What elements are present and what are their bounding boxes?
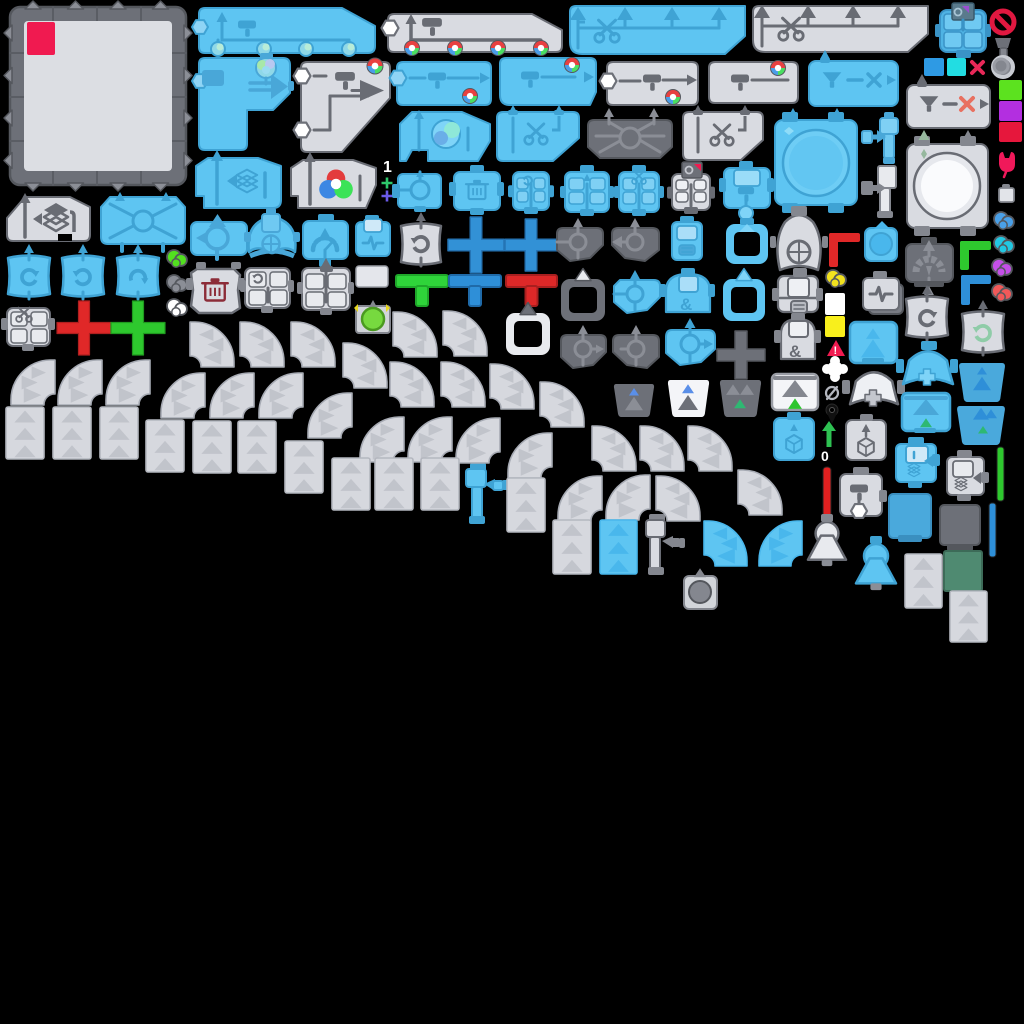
svg-text:0: 0 [821,448,829,464]
svg-text:&: & [680,295,692,314]
svg-text:!: ! [834,345,838,357]
svg-text:&: & [789,342,801,361]
svg-text:1: 1 [383,159,392,176]
